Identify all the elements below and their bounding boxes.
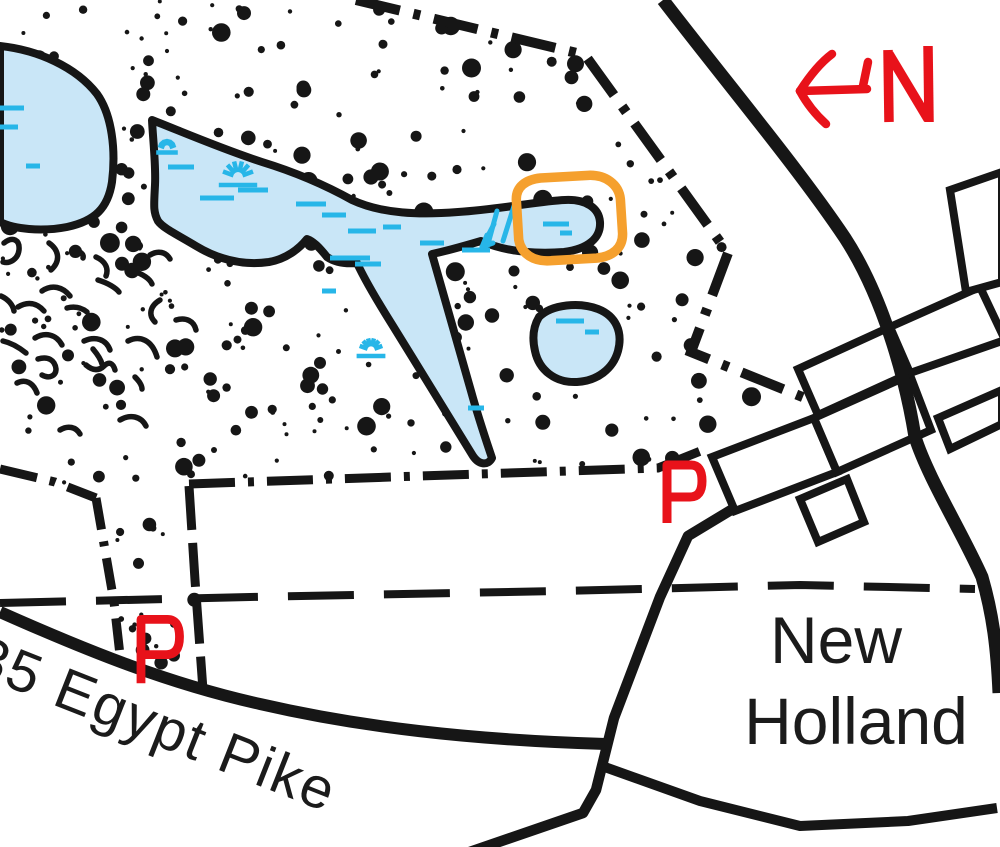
stipple-dot xyxy=(615,142,621,148)
town-block xyxy=(890,287,1000,373)
stipple-dot xyxy=(115,538,119,542)
park-boundary-line xyxy=(0,469,96,498)
stipple-dot xyxy=(532,392,541,401)
stipple-dot xyxy=(565,71,579,85)
north-arrow-stroke xyxy=(800,54,832,91)
stipple-dot xyxy=(363,169,378,184)
stipple-dot xyxy=(440,86,445,91)
west-lake xyxy=(0,46,113,229)
stipple-dot xyxy=(676,293,689,306)
stipple-dot xyxy=(245,406,258,419)
stipple-dot xyxy=(243,474,248,479)
stipple-dot xyxy=(500,368,514,382)
stipple-dot xyxy=(61,295,67,301)
stipple-dot xyxy=(93,373,107,387)
stipple-dot xyxy=(65,251,69,255)
stipple-dot xyxy=(160,293,164,297)
north-arrow xyxy=(800,54,868,124)
stipple-dot xyxy=(139,36,143,40)
stipple-dot xyxy=(313,260,325,272)
stipple-dot xyxy=(58,380,63,385)
stipple-dot xyxy=(133,558,144,569)
stipple-dot xyxy=(212,23,231,42)
stipple-dot xyxy=(463,281,467,285)
stipple-dot xyxy=(27,414,32,419)
dashed-trail xyxy=(0,585,975,603)
contour-fragment xyxy=(133,271,152,284)
stipple-dot xyxy=(68,459,75,466)
stipple-dot xyxy=(27,268,37,278)
contour-fragment xyxy=(135,377,142,389)
stipple-dot xyxy=(130,137,135,142)
stipple-dot xyxy=(627,304,631,308)
stipple-dot xyxy=(373,398,390,415)
stipple-dot xyxy=(326,266,334,274)
stipple-dot xyxy=(672,317,677,322)
town-blocks xyxy=(712,172,1000,542)
contour-fragment xyxy=(60,427,80,434)
stipple-dot xyxy=(344,308,348,312)
stipple-dot xyxy=(440,441,451,452)
stipple-dot xyxy=(485,308,499,322)
stipple-dot xyxy=(317,383,328,394)
stipple-dot xyxy=(297,81,311,95)
stipple-dot xyxy=(116,222,128,234)
stipple-dot xyxy=(458,314,474,330)
stipple-dot xyxy=(335,20,342,27)
stipple-dot xyxy=(126,325,130,329)
stipple-dot xyxy=(268,405,277,414)
contour-fragment xyxy=(17,381,37,393)
stipple-dot xyxy=(283,344,290,351)
stipple-dot xyxy=(181,363,188,370)
stipple-dot xyxy=(627,160,634,167)
stipple-dot xyxy=(154,13,160,19)
stipple-dot xyxy=(204,372,217,385)
stipple-dot xyxy=(576,101,581,106)
stipple-dot xyxy=(412,451,416,455)
contour-fragment xyxy=(93,349,102,364)
town-label-line2: Holland xyxy=(744,684,968,758)
stipple-dot xyxy=(671,417,676,422)
stipple-dot xyxy=(140,75,155,90)
stipple-dot xyxy=(657,177,663,183)
stipple-dot xyxy=(378,181,386,189)
stipple-dot xyxy=(609,197,613,201)
stipple-dot xyxy=(150,525,157,532)
trail-line xyxy=(0,585,975,603)
stipple-dot xyxy=(245,302,258,315)
stipple-dot xyxy=(214,128,224,138)
stipple-dot xyxy=(130,124,145,139)
north-arrow-stroke xyxy=(863,62,868,86)
contour-fragment xyxy=(128,339,157,357)
stipple-dot xyxy=(386,190,392,196)
stipple-dot xyxy=(132,622,137,627)
stipple-dot xyxy=(611,272,629,290)
east-branch-road xyxy=(602,766,997,826)
contour-fragment xyxy=(176,319,196,330)
stipple-dot xyxy=(293,147,310,164)
stipple-dot xyxy=(209,27,213,31)
stipple-dot xyxy=(222,340,232,350)
stipple-dot xyxy=(82,313,101,332)
stipple-dot xyxy=(432,175,436,179)
stipple-dot xyxy=(234,336,242,344)
stipple-dot xyxy=(285,432,289,436)
stipple-dot xyxy=(314,357,326,369)
contour-fragment xyxy=(98,280,119,292)
contour-fragment xyxy=(151,300,160,322)
stipple-dot xyxy=(144,72,148,76)
stipple-dot xyxy=(263,140,272,149)
stipple-dot xyxy=(699,416,716,433)
stipple-dot xyxy=(165,364,175,374)
contour-fragment xyxy=(38,358,56,377)
stipple-dot xyxy=(742,387,761,406)
stipple-dot xyxy=(72,325,78,331)
stipple-dot xyxy=(466,287,470,291)
stipple-dot xyxy=(317,417,323,423)
stipple-dot xyxy=(241,346,246,351)
stipple-dot xyxy=(168,299,172,303)
stipple-dot xyxy=(662,222,667,227)
stipple-dot xyxy=(116,528,124,536)
stipple-dot xyxy=(169,303,175,309)
stipple-dot xyxy=(206,267,211,272)
stipple-dot xyxy=(462,59,481,78)
stipple-dot xyxy=(79,6,87,14)
contour-fragment xyxy=(120,417,146,426)
stipple-dot xyxy=(122,192,135,205)
stipple-dot xyxy=(379,40,388,49)
stipple-dot xyxy=(77,311,82,316)
stipple-dot xyxy=(455,303,461,309)
north-arrow-stroke xyxy=(800,91,826,124)
north-letter-stroke xyxy=(889,54,928,119)
stipple-dot xyxy=(222,383,230,391)
stipple-dot xyxy=(207,389,220,402)
stipple-dot xyxy=(633,449,651,467)
stipple-dot xyxy=(547,57,557,67)
stipple-dot xyxy=(377,69,381,73)
stipple-dot xyxy=(123,455,128,460)
stipple-dot xyxy=(25,427,31,433)
park-boundary-line xyxy=(189,450,703,484)
stipple-dot xyxy=(598,262,611,275)
stipple-dot xyxy=(140,367,144,371)
stipple-dot xyxy=(125,30,130,35)
town-block xyxy=(938,390,1000,449)
contour-fragment xyxy=(67,307,87,312)
stipple-dot xyxy=(505,418,510,423)
park-boundary-line xyxy=(189,486,203,690)
stipple-dot xyxy=(345,426,349,430)
stipple-dot xyxy=(141,307,145,311)
stipple-dot xyxy=(644,416,649,421)
stipple-dot xyxy=(32,318,38,324)
map: NewHolland35 Egypt Pike xyxy=(0,0,1000,847)
stipple-dot xyxy=(5,324,17,336)
stipple-dot xyxy=(513,285,517,289)
stipple-dot xyxy=(138,247,142,251)
stipple-dot xyxy=(122,127,126,131)
stipple-dot xyxy=(386,414,391,419)
stipple-dot xyxy=(401,171,407,177)
tussock-ray xyxy=(170,145,176,147)
contour-fragment xyxy=(84,339,110,350)
stipple-dot xyxy=(691,373,707,389)
stipple-dot xyxy=(6,272,10,276)
stipple-dot xyxy=(176,438,185,447)
stipple-dot xyxy=(116,400,126,410)
stipple-dot xyxy=(62,480,66,484)
stipple-dot xyxy=(329,396,336,403)
stipple-dot xyxy=(467,347,471,351)
contour-fragment xyxy=(18,304,44,311)
stipple-dot xyxy=(313,429,317,433)
stipple-dot xyxy=(461,129,465,133)
stipple-dot xyxy=(407,419,414,426)
stipple-dot xyxy=(166,106,176,116)
stipple-dot xyxy=(231,425,242,436)
north-arrow-stroke xyxy=(800,89,867,91)
stipple-dot xyxy=(648,178,654,184)
park-boundary-line xyxy=(96,498,121,664)
stipple-dot xyxy=(336,112,341,117)
stipple-dot xyxy=(411,131,422,142)
stipple-dot xyxy=(103,404,109,410)
stipple-dot xyxy=(154,644,158,648)
stipple-dots xyxy=(0,0,761,676)
stipple-dot xyxy=(37,396,55,414)
town-label-line1: New xyxy=(770,603,902,677)
stipple-dot xyxy=(452,165,461,174)
tussock-ray xyxy=(368,338,370,346)
stipple-dot xyxy=(291,101,299,109)
stipple-dot xyxy=(242,8,248,14)
stipple-dot xyxy=(141,184,147,190)
stipple-dot xyxy=(518,153,536,171)
stipple-dot xyxy=(163,290,168,295)
stipple-dot xyxy=(697,397,703,403)
stipple-dot xyxy=(62,349,74,361)
stipple-dot xyxy=(244,87,254,97)
stipple-dot xyxy=(488,40,492,44)
stipple-dot xyxy=(535,415,550,430)
stipple-dot xyxy=(509,266,520,277)
stipple-dot xyxy=(258,46,265,53)
stipple-dot xyxy=(670,211,674,215)
stipple-dot xyxy=(132,475,139,482)
stipple-dot xyxy=(235,93,240,98)
stipple-dot xyxy=(275,459,279,463)
stipple-dot xyxy=(316,333,320,337)
stipple-dot xyxy=(469,91,480,102)
stipple-dot xyxy=(21,31,25,35)
stipple-dot xyxy=(357,417,376,436)
stipple-dot xyxy=(241,131,256,146)
stipple-dot xyxy=(366,362,372,368)
parking-marker-1 xyxy=(667,465,702,523)
stipple-dot xyxy=(533,459,537,463)
contour-fragment xyxy=(35,335,62,345)
small-pond xyxy=(533,305,619,382)
stipple-dot xyxy=(634,232,650,248)
stipple-dot xyxy=(350,132,367,149)
town-block xyxy=(800,479,864,542)
map-canvas: NewHolland35 Egypt Pike xyxy=(0,0,1000,847)
stipple-dot xyxy=(481,166,485,170)
stipple-dot xyxy=(263,306,275,318)
stipple-dot xyxy=(652,352,662,362)
stipple-dot xyxy=(161,532,165,536)
contour-fragment xyxy=(96,257,107,276)
stipple-dot xyxy=(526,296,540,310)
stipple-dot xyxy=(210,3,214,7)
stipple-dot xyxy=(158,0,162,3)
stipple-dot xyxy=(35,276,39,280)
stipple-dot xyxy=(123,167,134,178)
town-block xyxy=(950,172,1000,292)
stipple-dot xyxy=(717,242,727,252)
stipple-dot xyxy=(187,470,195,478)
stipple-dot xyxy=(277,41,286,50)
stipple-dot xyxy=(109,380,125,396)
stipple-dot xyxy=(355,147,360,152)
stipple-dot xyxy=(283,422,287,426)
stipple-dot xyxy=(687,249,704,266)
contour-fragment xyxy=(3,341,26,353)
north-letter xyxy=(888,46,929,122)
stipple-dot xyxy=(43,12,50,19)
stipple-dot xyxy=(131,66,135,70)
stipple-dot xyxy=(164,31,168,35)
stipple-dot xyxy=(523,305,527,309)
stipple-dot xyxy=(224,280,231,287)
contour-fragment xyxy=(3,239,19,262)
stipple-dot xyxy=(178,17,187,26)
stipple-dot xyxy=(605,424,618,437)
stipple-dot xyxy=(192,454,205,467)
stipple-dot xyxy=(100,233,120,253)
contour-fragment xyxy=(150,252,170,259)
stipple-dot xyxy=(0,327,5,332)
stipple-dot xyxy=(182,91,188,97)
stipple-dot xyxy=(538,460,542,464)
tussock-ray xyxy=(234,162,237,173)
stipple-dot xyxy=(567,55,584,72)
stipple-dot xyxy=(176,76,180,80)
stipple-dot xyxy=(309,403,316,410)
stipple-dot xyxy=(446,262,465,281)
tussock-ray xyxy=(374,346,382,349)
stipple-dot xyxy=(165,49,169,53)
stipple-dot xyxy=(211,447,217,453)
stipple-dot xyxy=(637,303,645,311)
stipple-dot xyxy=(336,349,341,354)
stipple-dot xyxy=(302,367,319,384)
stipple-dot xyxy=(41,324,46,329)
stipple-dot xyxy=(241,326,250,335)
stipple-dot xyxy=(94,472,101,479)
contour-fragment xyxy=(42,287,70,296)
stipple-dot xyxy=(440,66,448,74)
stipple-dot xyxy=(229,322,233,326)
stipple-dot xyxy=(45,316,52,323)
stipple-dot xyxy=(177,338,194,355)
stipple-dot xyxy=(626,316,630,320)
stipple-dot xyxy=(464,291,476,303)
stipple-dot xyxy=(343,174,354,185)
stipple-dot xyxy=(573,394,578,399)
contour-fragment xyxy=(1,296,14,311)
stipple-dot xyxy=(12,360,27,375)
stipple-dot xyxy=(522,154,527,159)
stipple-dot xyxy=(514,91,526,103)
stipple-dot xyxy=(143,55,154,66)
stipple-dot xyxy=(509,68,513,72)
stipple-dot xyxy=(273,149,277,153)
stipple-dot xyxy=(388,18,395,25)
stipple-dot xyxy=(288,9,292,13)
stipple-dot xyxy=(641,211,648,218)
north-letter-stroke xyxy=(928,46,929,122)
stipple-dot xyxy=(371,446,377,452)
tussock-symbol xyxy=(357,338,386,356)
